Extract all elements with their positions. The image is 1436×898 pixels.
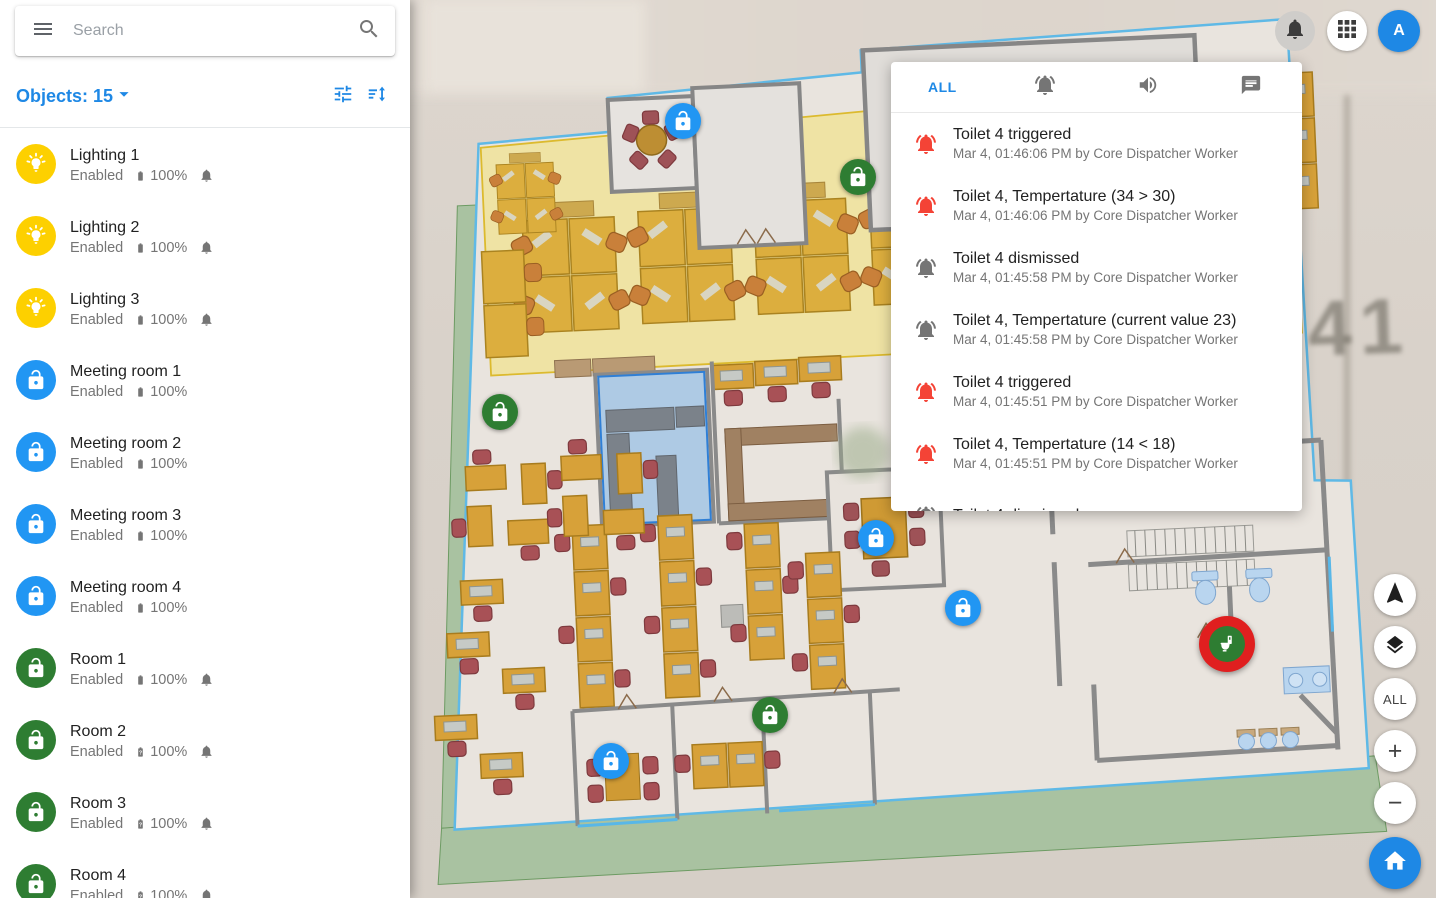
fit-all-button[interactable]: ALL [1374, 678, 1416, 720]
lock-open-icon [600, 750, 622, 772]
zoom-in-label: + [1388, 737, 1403, 766]
battery-icon: ? [135, 816, 146, 832]
object-name: Room 1 [70, 649, 394, 671]
notification-bell-icon [913, 256, 939, 280]
alarm-bell-icon [199, 888, 214, 898]
lightbulb-icon [16, 288, 56, 328]
home-button[interactable] [1369, 837, 1421, 889]
hamburger-icon [31, 17, 55, 46]
battery-level: 100% [150, 888, 187, 898]
lock-open-icon [847, 166, 869, 188]
notification-meta: Mar 4, 01:45:58 PM by Core Dispatcher Wo… [953, 269, 1286, 287]
lock-open-icon [16, 360, 56, 400]
home-icon [1382, 848, 1408, 879]
notifications-button[interactable] [1275, 11, 1315, 51]
lock-open-icon [16, 504, 56, 544]
tab-alarms[interactable] [994, 62, 1097, 112]
alarm-bell-icon [199, 168, 214, 183]
alarm-bell-icon [199, 240, 214, 255]
battery-icon [135, 600, 146, 616]
object-name: Room 3 [70, 793, 394, 815]
objects-label: Objects: [16, 86, 88, 107]
tab-all[interactable]: ALL [891, 62, 994, 112]
svg-text:?: ? [139, 750, 142, 756]
object-status: Enabled [70, 816, 123, 832]
lock-open-icon [16, 576, 56, 616]
map-marker-lock[interactable] [945, 590, 981, 626]
alarm-bell-icon [199, 312, 214, 327]
search-bar [15, 6, 395, 56]
object-list-item[interactable]: Meeting room 2 Enabled 100% [0, 416, 410, 488]
battery-level: 100% [150, 384, 187, 400]
notification-title: Toilet 4, Tempertature (14 < 18) [953, 435, 1286, 455]
lock-open-icon [865, 527, 887, 549]
layers-icon [1384, 634, 1406, 661]
object-status: Enabled [70, 384, 123, 400]
notifications-panel: ALL Toilet 4 triggered Mar 4, 01:46:06 P… [891, 62, 1302, 511]
notification-bell-icon [913, 318, 939, 342]
tab-messages[interactable] [1199, 62, 1302, 112]
battery-level: 100% [150, 672, 187, 688]
lightbulb-icon [16, 144, 56, 184]
compass-icon [1382, 580, 1408, 611]
notification-bell-icon [913, 132, 939, 156]
apps-grid-button[interactable] [1327, 11, 1367, 51]
battery-level: 100% [150, 744, 187, 760]
notification-bell-icon [913, 504, 939, 511]
battery-icon [135, 384, 146, 400]
lock-open-icon [672, 110, 694, 132]
volume-icon [1137, 74, 1159, 101]
object-name: Meeting room 1 [70, 361, 394, 383]
notification-item[interactable]: Toilet 4 dismissed Mar 4, 01:45:58 PM by… [891, 237, 1302, 299]
toilet-icon [1209, 626, 1245, 662]
avatar-letter: A [1393, 22, 1405, 40]
notification-item[interactable]: Toilet 4, Tempertature (14 < 18) Mar 4, … [891, 423, 1302, 485]
zoom-in-button[interactable]: + [1374, 730, 1416, 772]
lock-open-icon [16, 792, 56, 832]
filter-button[interactable] [326, 82, 360, 110]
alarm-bell-icon [199, 672, 214, 687]
lightbulb-icon [16, 216, 56, 256]
object-name: Lighting 2 [70, 217, 394, 239]
object-list-item[interactable]: Lighting 2 Enabled 100% [0, 200, 410, 272]
battery-level: 100% [150, 456, 187, 472]
battery-icon [135, 240, 146, 256]
object-list-item[interactable]: Meeting room 3 Enabled 100% [0, 488, 410, 560]
notification-bell-icon [913, 442, 939, 466]
lock-open-icon [16, 648, 56, 688]
chat-icon [1240, 74, 1262, 101]
object-name: Meeting room 4 [70, 577, 394, 599]
object-list-item[interactable]: Room 3 Enabled ? 100% [0, 776, 410, 848]
object-list-item[interactable]: Room 2 Enabled ? 100% [0, 704, 410, 776]
battery-level: 100% [150, 528, 187, 544]
lock-open-icon [16, 864, 56, 898]
alarm-bell-icon [199, 744, 214, 759]
notification-title: Toilet 4 dismissed [953, 249, 1286, 269]
battery-level: 100% [150, 600, 187, 616]
object-name: Meeting room 2 [70, 433, 394, 455]
notifications-list[interactable]: Toilet 4 triggered Mar 4, 01:46:06 PM by… [891, 113, 1302, 511]
object-list[interactable]: Lighting 1 Enabled 100% Lighting 2 Enabl… [0, 128, 410, 898]
map-marker-toilet-alarm[interactable] [1199, 616, 1255, 672]
search-input[interactable] [71, 21, 343, 41]
object-list-item[interactable]: Room 4 Enabled ? 100% [0, 848, 410, 898]
svg-text:?: ? [139, 894, 142, 898]
battery-icon: ? [135, 888, 146, 898]
object-name: Lighting 1 [70, 145, 394, 167]
notification-title: Toilet 4 triggered [953, 373, 1286, 393]
search-icon [357, 17, 381, 46]
tab-sounds[interactable] [1097, 62, 1200, 112]
notification-meta: Mar 4, 01:45:58 PM by Core Dispatcher Wo… [953, 331, 1286, 349]
object-list-item[interactable]: Meeting room 4 Enabled 100% [0, 560, 410, 632]
battery-level: 100% [150, 240, 187, 256]
lock-open-icon [952, 597, 974, 619]
svg-text:?: ? [139, 822, 142, 828]
object-status: Enabled [70, 456, 123, 472]
notification-title: Toilet 4 triggered [953, 125, 1286, 145]
battery-icon [135, 456, 146, 472]
battery-icon [135, 528, 146, 544]
zoom-out-button[interactable]: − [1374, 782, 1416, 824]
chevron-down-icon [113, 83, 135, 110]
object-name: Meeting room 3 [70, 505, 394, 527]
notification-item[interactable]: Toilet 4, Tempertature (34 > 30) Mar 4, … [891, 175, 1302, 237]
tune-icon [332, 83, 354, 110]
map-marker-lock[interactable] [840, 159, 876, 195]
objects-dropdown[interactable]: Objects: 15 [16, 83, 135, 110]
battery-icon [135, 168, 146, 184]
object-list-item[interactable]: Lighting 3 Enabled 100% [0, 272, 410, 344]
battery-level: 100% [150, 816, 187, 832]
compass-button[interactable] [1374, 574, 1416, 616]
object-status: Enabled [70, 312, 123, 328]
notification-item[interactable]: Toilet 4 triggered Mar 4, 01:46:06 PM by… [891, 113, 1302, 175]
object-status: Enabled [70, 600, 123, 616]
notification-title: Toilet 4, Tempertature (34 > 30) [953, 187, 1286, 207]
zoom-out-label: − [1388, 789, 1403, 818]
object-list-item[interactable]: Lighting 1 Enabled 100% [0, 128, 410, 200]
map-marker-lock[interactable] [482, 394, 518, 430]
lock-open-icon [16, 720, 56, 760]
battery-icon: ? [135, 744, 146, 760]
object-status: Enabled [70, 528, 123, 544]
notification-meta: Mar 4, 01:46:06 PM by Core Dispatcher Wo… [953, 207, 1286, 225]
map-marker-lock[interactable] [593, 743, 629, 779]
bell-ring-icon [1033, 73, 1057, 102]
object-name: Lighting 3 [70, 289, 394, 311]
lock-open-icon [489, 401, 511, 423]
notification-title: Toilet 4, Tempertature (current value 23… [953, 311, 1286, 331]
notification-title: Toilet 4 dismissed [953, 506, 1286, 511]
layers-button[interactable] [1374, 626, 1416, 668]
battery-icon [135, 672, 146, 688]
apps-grid-icon [1337, 19, 1357, 44]
object-list-item[interactable]: Meeting room 1 Enabled 100% [0, 344, 410, 416]
fit-all-label: ALL [1383, 692, 1407, 707]
menu-button[interactable] [15, 17, 71, 46]
objects-header: Objects: 15 [16, 80, 394, 112]
search-button[interactable] [343, 17, 395, 46]
battery-icon [135, 312, 146, 328]
object-status: Enabled [70, 888, 123, 898]
notification-bell-icon [913, 194, 939, 218]
sort-icon [366, 83, 388, 110]
object-status: Enabled [70, 672, 123, 688]
objects-count: 15 [93, 86, 113, 107]
map-marker-lock[interactable] [665, 103, 701, 139]
notification-item[interactable]: Toilet 4 dismissed [891, 485, 1302, 511]
map-marker-lock[interactable] [858, 520, 894, 556]
notification-item[interactable]: Toilet 4 triggered Mar 4, 01:45:51 PM by… [891, 361, 1302, 423]
object-status: Enabled [70, 168, 123, 184]
lock-open-icon [759, 704, 781, 726]
object-name: Room 2 [70, 721, 394, 743]
object-status: Enabled [70, 744, 123, 760]
notification-meta: Mar 4, 01:45:51 PM by Core Dispatcher Wo… [953, 393, 1286, 411]
notification-meta: Mar 4, 01:45:51 PM by Core Dispatcher Wo… [953, 455, 1286, 473]
tab-label: ALL [928, 79, 957, 95]
sidebar: Objects: 15 Lighting 1 Enabled 100% Lig [0, 0, 410, 898]
lock-open-icon [16, 432, 56, 472]
sort-button[interactable] [360, 82, 394, 110]
map-marker-lock[interactable] [752, 697, 788, 733]
notifications-tabs: ALL [891, 62, 1302, 113]
avatar[interactable]: A [1378, 10, 1420, 52]
bell-icon [1283, 17, 1307, 46]
object-name: Room 4 [70, 865, 394, 887]
notification-bell-icon [913, 380, 939, 404]
notification-meta: Mar 4, 01:46:06 PM by Core Dispatcher Wo… [953, 145, 1286, 163]
battery-level: 100% [150, 168, 187, 184]
object-status: Enabled [70, 240, 123, 256]
battery-level: 100% [150, 312, 187, 328]
alarm-bell-icon [199, 816, 214, 831]
notification-item[interactable]: Toilet 4, Tempertature (current value 23… [891, 299, 1302, 361]
object-list-item[interactable]: Room 1 Enabled 100% [0, 632, 410, 704]
